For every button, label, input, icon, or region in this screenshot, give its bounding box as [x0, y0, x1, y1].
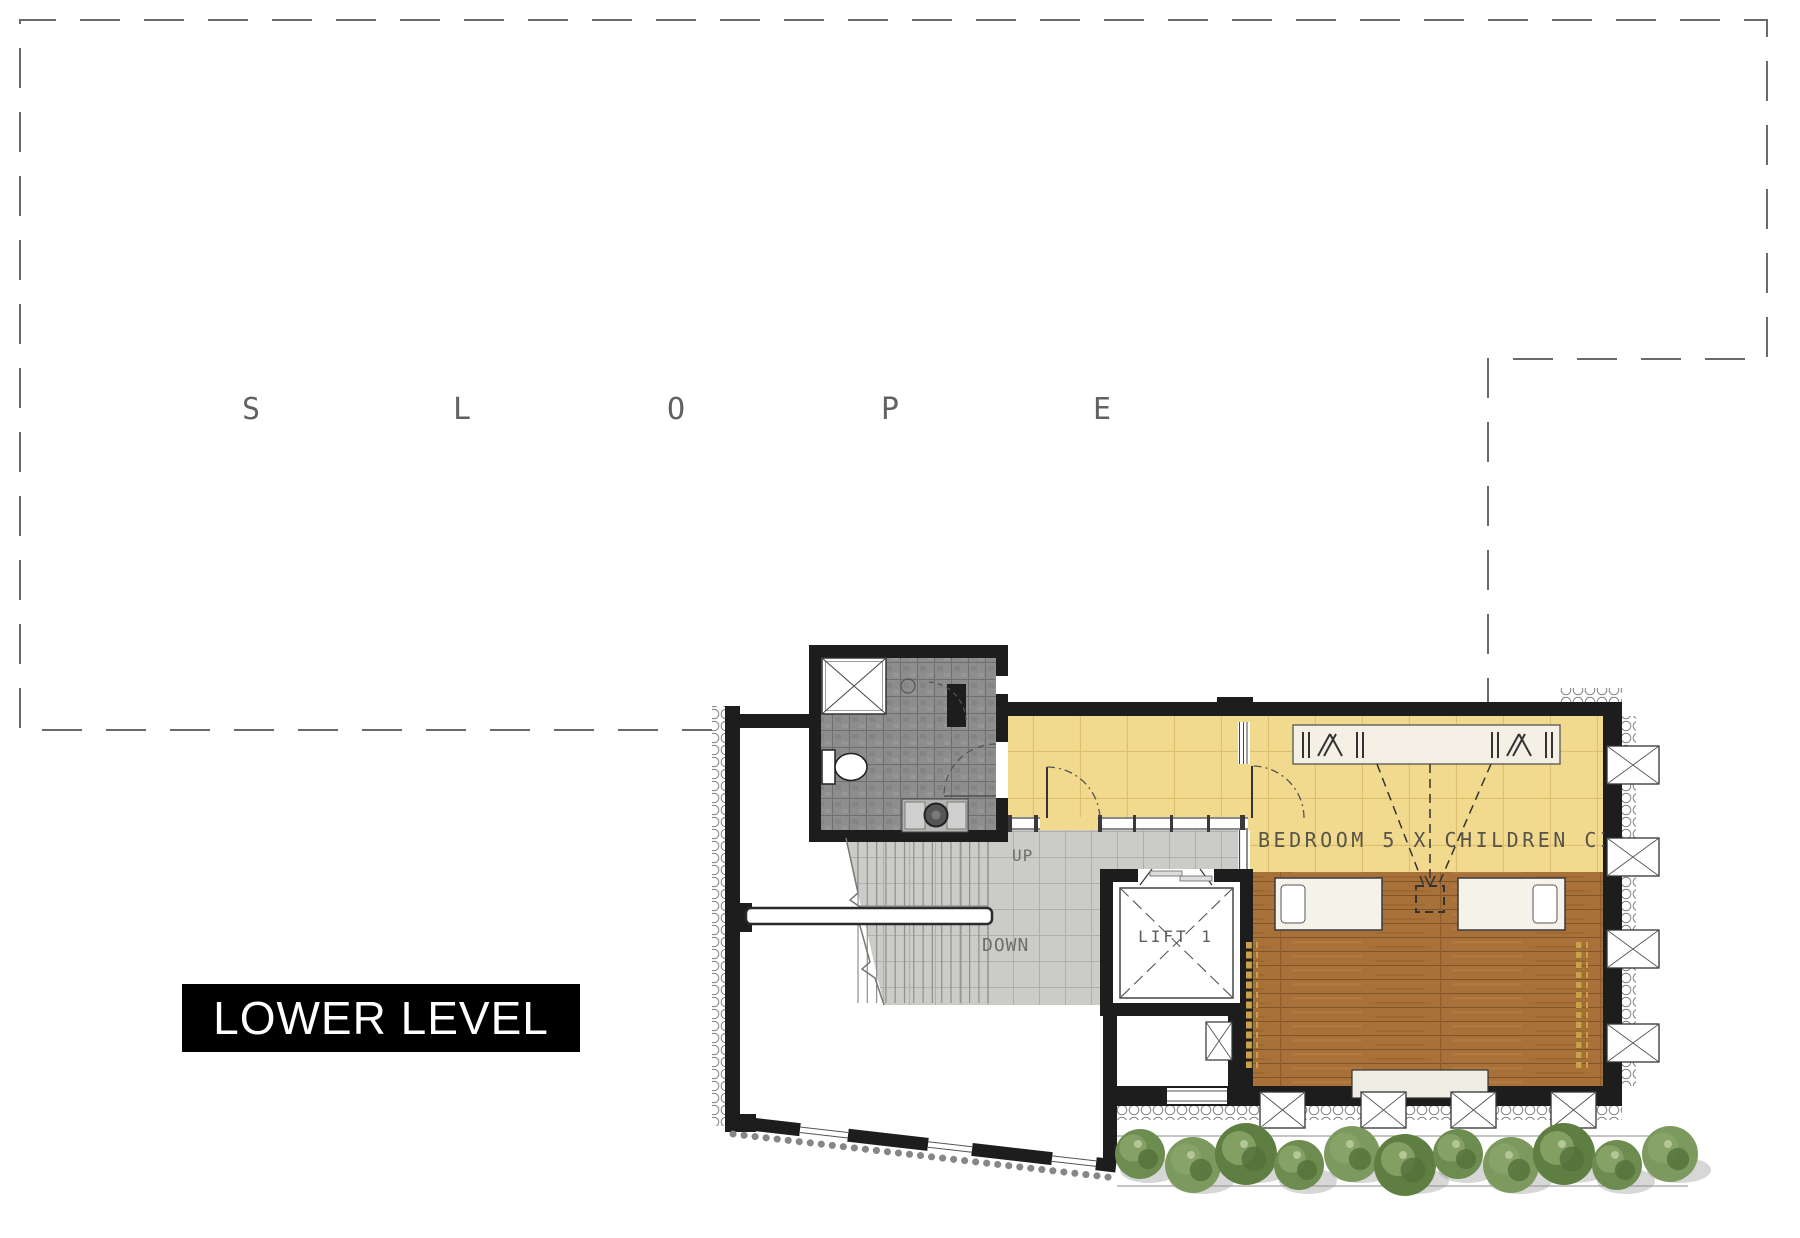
- toilet: [822, 750, 867, 784]
- bathroom: [821, 658, 1008, 832]
- sloped-south-wall: [733, 1122, 1116, 1178]
- window-box: [1607, 746, 1659, 784]
- level-title: LOWER LEVEL: [213, 991, 549, 1045]
- hedge-planter: [1115, 1123, 1711, 1196]
- room-label: BEDROOM 5 X CHILDREN CINEMA: [1258, 828, 1604, 852]
- slope-letter: S: [242, 392, 260, 427]
- window-box: [1361, 1092, 1406, 1128]
- site-boundary-dashed-line: [20, 20, 1767, 730]
- lift-label: LIFT 1: [1138, 927, 1214, 946]
- vanity-sink: [902, 799, 968, 832]
- lift-door: [1138, 869, 1214, 885]
- floor-plan-drawing: [0, 0, 1800, 1238]
- slope-letter: L: [453, 392, 471, 427]
- stairs-down-label: DOWN: [982, 935, 1029, 956]
- level-title-badge: LOWER LEVEL: [182, 984, 580, 1052]
- window-box: [1607, 1024, 1659, 1062]
- stairs-up-label: UP: [1012, 846, 1033, 865]
- wardrobe: [1293, 725, 1560, 764]
- lounger-bed: [1275, 878, 1382, 930]
- shower: [822, 658, 886, 714]
- slope-letter: E: [1093, 392, 1111, 427]
- lobby: [1167, 1022, 1232, 1104]
- window-box: [1551, 1092, 1596, 1128]
- window-box: [1260, 1092, 1305, 1128]
- stair-handrail: [746, 908, 992, 924]
- floor-plan-page: S L O P E LOWER LEVEL BEDROOM 5 X CHILDR…: [0, 0, 1800, 1238]
- window-box: [1451, 1092, 1496, 1128]
- window-box: [1607, 930, 1659, 968]
- slope-letter: P: [881, 392, 899, 427]
- lounger-bed: [1458, 878, 1565, 930]
- window-box: [1607, 838, 1659, 876]
- slope-letter: O: [667, 392, 685, 427]
